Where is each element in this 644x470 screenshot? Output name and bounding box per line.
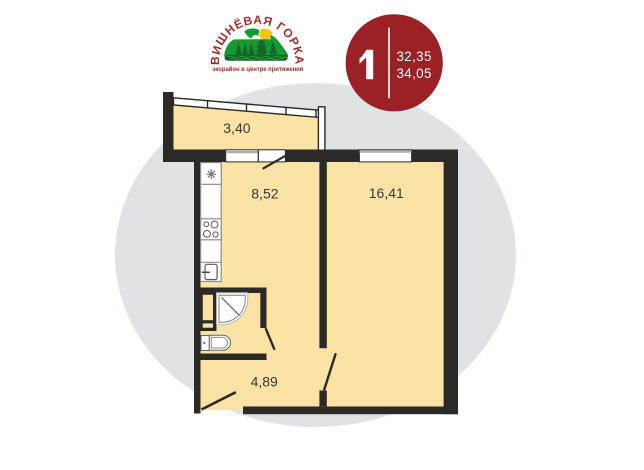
svg-text:3,40: 3,40 bbox=[223, 120, 250, 136]
svg-text:32,35: 32,35 bbox=[397, 49, 432, 64]
svg-text:8,52: 8,52 bbox=[251, 186, 278, 202]
svg-text:экорайон в центре притяжения: экорайон в центре притяжения bbox=[212, 65, 303, 73]
svg-text:34,05: 34,05 bbox=[397, 66, 432, 81]
svg-text:16,41: 16,41 bbox=[369, 185, 404, 201]
svg-text:4,89: 4,89 bbox=[251, 374, 278, 390]
